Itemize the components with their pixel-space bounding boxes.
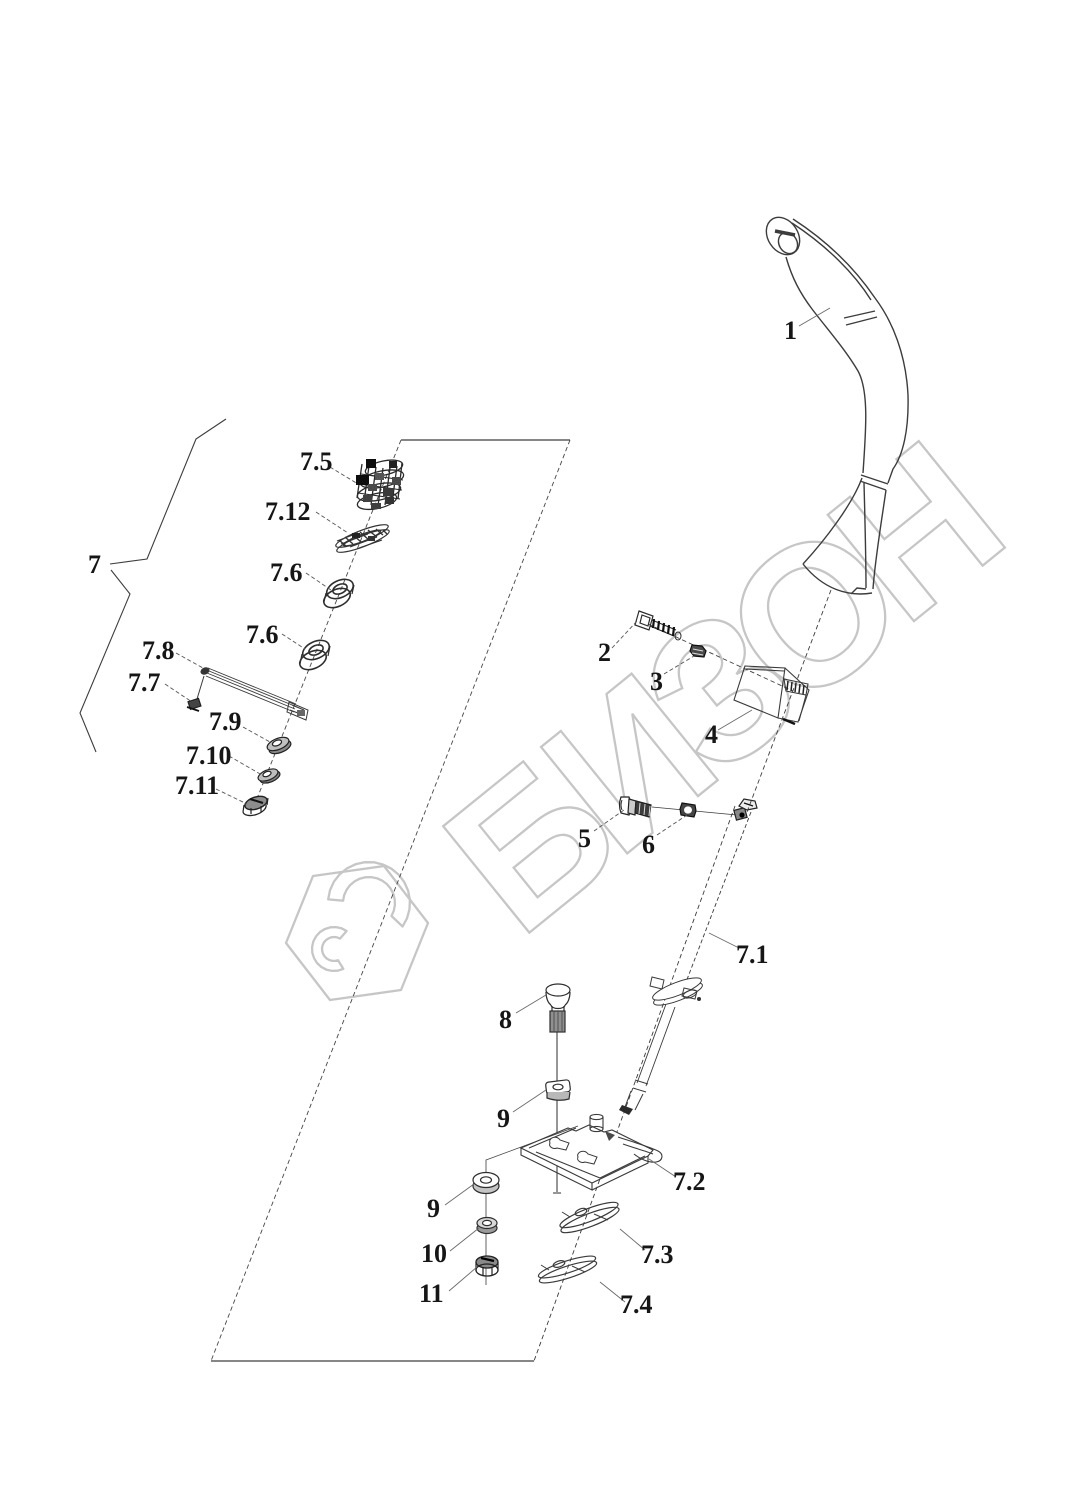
svg-text:7.11: 7.11 [175, 771, 219, 800]
svg-text:7.6: 7.6 [270, 558, 303, 587]
svg-text:7.10: 7.10 [186, 741, 232, 770]
svg-text:6: 6 [642, 830, 655, 859]
svg-text:2: 2 [598, 638, 611, 667]
svg-text:11: 11 [419, 1279, 444, 1308]
svg-text:7: 7 [88, 550, 101, 579]
svg-text:3: 3 [650, 667, 663, 696]
svg-text:7.1: 7.1 [736, 940, 769, 969]
svg-text:7.8: 7.8 [142, 636, 175, 665]
svg-text:1: 1 [784, 316, 797, 345]
svg-text:8: 8 [499, 1005, 512, 1034]
svg-text:7.12: 7.12 [265, 497, 311, 526]
svg-text:7.6: 7.6 [246, 620, 279, 649]
svg-text:7.2: 7.2 [673, 1167, 706, 1196]
svg-text:9: 9 [427, 1194, 440, 1223]
svg-text:10: 10 [421, 1239, 447, 1268]
svg-text:7.5: 7.5 [300, 447, 333, 476]
svg-text:4: 4 [705, 720, 718, 749]
svg-text:7.9: 7.9 [209, 707, 242, 736]
svg-text:5: 5 [578, 824, 591, 853]
svg-text:7.4: 7.4 [620, 1290, 653, 1319]
svg-text:7.3: 7.3 [641, 1240, 674, 1269]
svg-text:9: 9 [497, 1104, 510, 1133]
svg-text:7.7: 7.7 [128, 668, 161, 697]
